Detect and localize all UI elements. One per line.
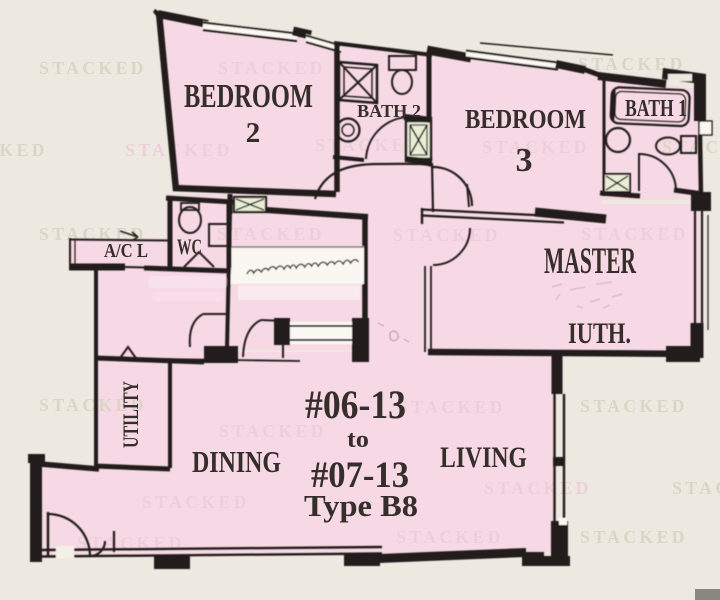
svg-text:STACKED: STACKED — [580, 527, 688, 547]
svg-text:#06-13: #06-13 — [305, 382, 406, 427]
svg-text:STACKED: STACKED — [125, 140, 233, 160]
svg-text:WC: WC — [177, 234, 202, 259]
svg-text:A/C L: A/C L — [104, 240, 148, 262]
svg-text:BEDROOM: BEDROOM — [465, 104, 586, 134]
svg-text:BATH 2: BATH 2 — [357, 101, 421, 121]
svg-text:STACKED: STACKED — [396, 527, 504, 547]
svg-text:BEDROOM: BEDROOM — [184, 78, 313, 115]
svg-text:STACKED: STACKED — [217, 224, 325, 244]
svg-text:BATH 1: BATH 1 — [625, 96, 687, 122]
svg-text:to: to — [347, 427, 369, 453]
svg-text:STACKED: STACKED — [580, 396, 688, 416]
svg-text:STACKED: STACKED — [482, 137, 590, 157]
svg-text:STACKED: STACKED — [398, 397, 506, 417]
svg-text:STACKED: STACKED — [218, 58, 326, 78]
svg-text:UTILITY: UTILITY — [118, 381, 143, 448]
svg-text:MASTER: MASTER — [544, 241, 637, 282]
svg-text:STACKED: STACKED — [484, 478, 592, 498]
svg-text:LIVING: LIVING — [440, 441, 527, 474]
svg-text:STACKED: STACKED — [0, 140, 48, 160]
svg-text:STACKED: STACKED — [39, 58, 147, 78]
svg-text:DINING: DINING — [192, 444, 281, 479]
svg-text:STACKED: STACKED — [672, 478, 720, 498]
svg-text:3: 3 — [516, 142, 533, 179]
svg-text:STACKED: STACKED — [142, 492, 250, 512]
svg-text:Type B8: Type B8 — [304, 488, 418, 523]
svg-text:STACKED: STACKED — [393, 225, 501, 245]
svg-text:IUTH.: IUTH. — [568, 317, 631, 350]
svg-text:2: 2 — [246, 117, 261, 149]
